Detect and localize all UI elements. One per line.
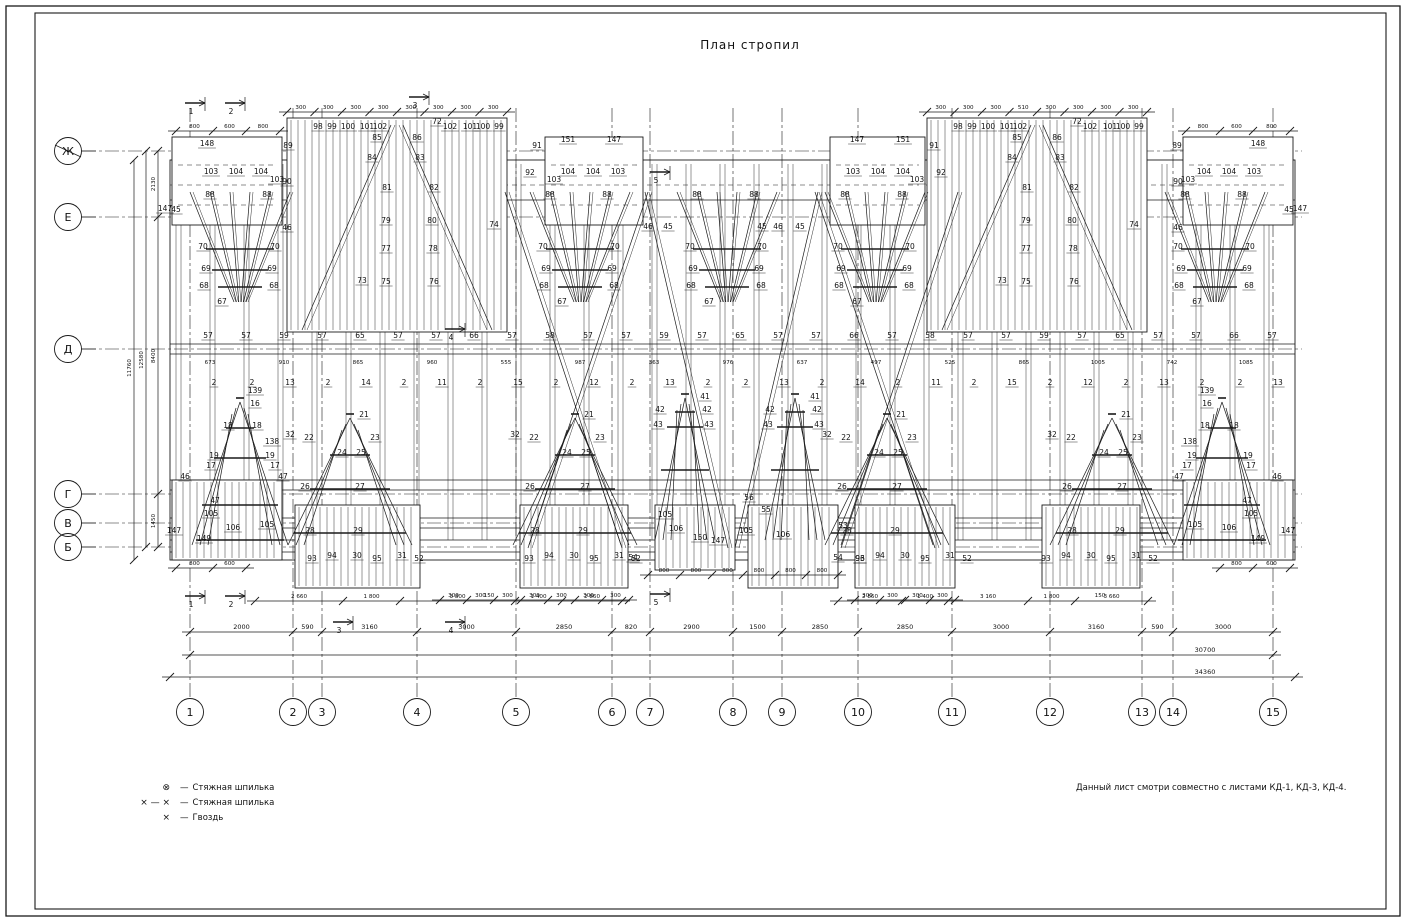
svg-text:148: 148 [200, 139, 215, 148]
svg-text:32: 32 [822, 430, 832, 439]
svg-text:300: 300 [502, 593, 513, 599]
svg-text:19: 19 [1187, 451, 1197, 460]
svg-text:95: 95 [372, 554, 382, 563]
svg-text:89: 89 [283, 141, 293, 150]
svg-text:Е: Е [65, 211, 72, 224]
svg-text:11: 11 [437, 378, 447, 387]
svg-text:2: 2 [229, 107, 234, 116]
svg-text:12: 12 [1043, 706, 1057, 719]
svg-text:5: 5 [654, 176, 659, 185]
svg-text:105: 105 [658, 510, 673, 519]
svg-text:21: 21 [359, 410, 369, 419]
svg-text:57: 57 [697, 331, 707, 340]
svg-text:Ж: Ж [62, 145, 74, 158]
svg-text:13: 13 [1273, 378, 1283, 387]
svg-text:2850: 2850 [812, 623, 829, 631]
svg-text:34360: 34360 [1195, 668, 1216, 676]
legend: ⊗ — Стяжная шпилька × — × — Стяжная шпил… [118, 780, 274, 825]
svg-text:300: 300 [448, 593, 459, 599]
svg-text:10: 10 [851, 706, 865, 719]
legend-separator: — [176, 783, 193, 793]
svg-text:100: 100 [341, 122, 356, 131]
svg-text:555: 555 [501, 360, 512, 366]
svg-text:150: 150 [1095, 593, 1106, 599]
svg-text:600: 600 [1231, 124, 1242, 130]
svg-text:2: 2 [630, 378, 635, 387]
svg-text:43: 43 [763, 420, 773, 429]
svg-text:300: 300 [529, 593, 540, 599]
svg-text:105: 105 [260, 520, 275, 529]
svg-text:52: 52 [414, 554, 424, 563]
svg-text:5: 5 [513, 706, 520, 719]
svg-text:23: 23 [370, 433, 380, 442]
svg-text:23: 23 [1132, 433, 1142, 442]
svg-text:510: 510 [1018, 105, 1029, 111]
svg-text:27: 27 [580, 482, 590, 491]
svg-text:104: 104 [1222, 167, 1237, 176]
svg-text:102: 102 [443, 122, 458, 131]
svg-text:105: 105 [739, 526, 754, 535]
svg-text:88: 88 [602, 190, 612, 199]
svg-text:17: 17 [1246, 461, 1256, 470]
svg-text:15: 15 [513, 378, 523, 387]
svg-text:150: 150 [693, 533, 708, 542]
svg-text:300: 300 [433, 105, 444, 111]
svg-text:46: 46 [1272, 472, 1282, 481]
svg-text:22: 22 [841, 433, 851, 442]
svg-text:2: 2 [1238, 378, 1243, 387]
svg-text:600: 600 [224, 124, 235, 130]
svg-text:149: 149 [197, 534, 212, 543]
svg-text:94: 94 [544, 551, 554, 560]
svg-text:800: 800 [189, 124, 200, 130]
svg-text:77: 77 [1021, 244, 1031, 253]
svg-text:88: 88 [545, 190, 555, 199]
svg-text:31: 31 [614, 551, 624, 560]
svg-text:30: 30 [569, 551, 579, 560]
svg-text:300: 300 [912, 593, 923, 599]
svg-text:138: 138 [265, 437, 280, 446]
svg-text:147: 147 [711, 536, 726, 545]
svg-text:67: 67 [852, 297, 862, 306]
svg-text:69: 69 [688, 264, 698, 273]
svg-text:В: В [64, 517, 72, 530]
svg-text:57: 57 [203, 331, 213, 340]
svg-text:14: 14 [361, 378, 371, 387]
svg-text:68: 68 [199, 281, 209, 290]
svg-text:28: 28 [530, 526, 540, 535]
svg-text:1500: 1500 [749, 623, 766, 631]
svg-text:27: 27 [1117, 482, 1127, 491]
svg-text:2900: 2900 [683, 623, 700, 631]
svg-text:8400: 8400 [151, 348, 157, 363]
svg-text:12580: 12580 [139, 351, 145, 369]
svg-text:24: 24 [1099, 448, 1109, 457]
svg-text:742: 742 [1167, 360, 1178, 366]
svg-text:82: 82 [1069, 183, 1079, 192]
svg-text:300: 300 [323, 105, 334, 111]
svg-text:30: 30 [352, 551, 362, 560]
svg-text:800: 800 [722, 568, 733, 574]
svg-text:105: 105 [204, 509, 219, 518]
svg-text:84: 84 [367, 153, 377, 162]
svg-text:32: 32 [510, 430, 520, 439]
svg-text:69: 69 [541, 264, 551, 273]
svg-text:27: 27 [892, 482, 902, 491]
svg-text:58: 58 [545, 331, 555, 340]
svg-text:25: 25 [581, 448, 591, 457]
svg-text:84: 84 [1007, 153, 1017, 162]
svg-text:2: 2 [1048, 378, 1053, 387]
svg-text:99: 99 [1134, 122, 1144, 131]
svg-text:3 660: 3 660 [1103, 594, 1119, 600]
svg-text:2: 2 [212, 378, 217, 387]
svg-text:151: 151 [896, 135, 911, 144]
svg-text:960: 960 [427, 360, 438, 366]
svg-text:68: 68 [269, 281, 279, 290]
svg-text:800: 800 [258, 124, 269, 130]
svg-text:800: 800 [785, 568, 796, 574]
svg-text:2: 2 [972, 378, 977, 387]
svg-text:68: 68 [834, 281, 844, 290]
svg-text:73: 73 [357, 276, 367, 285]
svg-text:43: 43 [704, 420, 714, 429]
drawing-sheet: 2000590316030002850820290015002850285030… [0, 0, 1407, 923]
svg-text:45: 45 [1284, 205, 1294, 214]
svg-text:2: 2 [744, 378, 749, 387]
svg-text:18: 18 [1229, 421, 1239, 430]
svg-text:104: 104 [1197, 167, 1212, 176]
svg-text:104: 104 [254, 167, 269, 176]
svg-text:88: 88 [205, 190, 215, 199]
svg-text:57: 57 [1077, 331, 1087, 340]
svg-text:66: 66 [849, 331, 859, 340]
svg-text:147: 147 [850, 135, 865, 144]
svg-text:2 660: 2 660 [291, 594, 307, 600]
svg-text:55: 55 [761, 505, 771, 514]
svg-text:72: 72 [432, 117, 442, 126]
svg-text:26: 26 [1062, 482, 1072, 491]
svg-text:11760: 11760 [127, 359, 133, 377]
svg-text:820: 820 [625, 623, 637, 631]
svg-text:57: 57 [583, 331, 593, 340]
svg-text:3000: 3000 [993, 623, 1010, 631]
svg-text:800: 800 [817, 568, 828, 574]
svg-text:15: 15 [1007, 378, 1017, 387]
svg-text:104: 104 [586, 167, 601, 176]
svg-text:105: 105 [1244, 509, 1259, 518]
svg-text:88: 88 [1237, 190, 1247, 199]
svg-text:18: 18 [223, 421, 233, 430]
svg-text:86: 86 [412, 133, 422, 142]
svg-text:800: 800 [1266, 124, 1277, 130]
svg-text:69: 69 [267, 264, 277, 273]
svg-text:78: 78 [1068, 244, 1078, 253]
svg-text:88: 88 [897, 190, 907, 199]
svg-text:47: 47 [1242, 496, 1252, 505]
svg-text:147: 147 [607, 135, 622, 144]
svg-text:99: 99 [967, 122, 977, 131]
svg-text:3: 3 [413, 101, 418, 110]
legend-label: Гвоздь [193, 813, 224, 823]
svg-text:69: 69 [836, 264, 846, 273]
svg-text:94: 94 [327, 551, 337, 560]
svg-text:59: 59 [659, 331, 669, 340]
svg-text:2000: 2000 [233, 623, 250, 631]
svg-text:75: 75 [1021, 277, 1031, 286]
svg-text:106: 106 [669, 524, 684, 533]
svg-text:31: 31 [1131, 551, 1141, 560]
svg-text:42: 42 [812, 405, 822, 414]
svg-text:19: 19 [209, 451, 219, 460]
svg-text:13: 13 [285, 378, 295, 387]
svg-text:103: 103 [910, 175, 925, 184]
svg-text:93: 93 [524, 554, 534, 563]
svg-text:300: 300 [1100, 105, 1111, 111]
svg-text:19: 19 [265, 451, 275, 460]
svg-text:65: 65 [355, 331, 365, 340]
svg-text:525: 525 [945, 360, 956, 366]
svg-text:29: 29 [1115, 526, 1125, 535]
svg-text:300: 300 [937, 593, 948, 599]
svg-text:46: 46 [282, 223, 292, 232]
svg-text:26: 26 [300, 482, 310, 491]
svg-text:4: 4 [449, 626, 454, 635]
svg-text:79: 79 [381, 216, 391, 225]
svg-text:103: 103 [1247, 167, 1262, 176]
svg-text:57: 57 [811, 331, 821, 340]
svg-text:69: 69 [201, 264, 211, 273]
svg-text:68: 68 [686, 281, 696, 290]
svg-text:106: 106 [1222, 523, 1237, 532]
svg-text:67: 67 [704, 297, 714, 306]
svg-text:92: 92 [936, 168, 946, 177]
svg-text:28: 28 [1067, 526, 1077, 535]
svg-text:102: 102 [1083, 122, 1098, 131]
svg-text:103: 103 [611, 167, 626, 176]
svg-text:2850: 2850 [897, 623, 914, 631]
svg-text:104: 104 [561, 167, 576, 176]
svg-text:32: 32 [1047, 430, 1057, 439]
svg-text:300: 300 [935, 105, 946, 111]
svg-text:25: 25 [1118, 448, 1128, 457]
svg-text:43: 43 [814, 420, 824, 429]
svg-text:147: 147 [1293, 204, 1308, 213]
svg-text:69: 69 [607, 264, 617, 273]
svg-text:3160: 3160 [361, 623, 378, 631]
svg-text:300: 300 [610, 593, 621, 599]
svg-text:865: 865 [1019, 360, 1030, 366]
svg-text:497: 497 [871, 360, 882, 366]
svg-text:Д: Д [64, 343, 73, 356]
svg-text:2: 2 [326, 378, 331, 387]
svg-text:68: 68 [609, 281, 619, 290]
svg-text:3160: 3160 [1088, 623, 1105, 631]
svg-text:41: 41 [810, 392, 820, 401]
svg-text:30: 30 [900, 551, 910, 560]
svg-text:47: 47 [1174, 472, 1184, 481]
svg-text:22: 22 [304, 433, 314, 442]
svg-text:14: 14 [855, 378, 865, 387]
svg-text:67: 67 [217, 297, 227, 306]
svg-text:93: 93 [1041, 554, 1051, 563]
svg-text:104: 104 [896, 167, 911, 176]
svg-text:74: 74 [489, 220, 499, 229]
svg-text:16: 16 [1202, 399, 1212, 408]
svg-text:23: 23 [907, 433, 917, 442]
svg-text:103: 103 [846, 167, 861, 176]
svg-text:81: 81 [382, 183, 392, 192]
svg-text:147: 147 [158, 204, 173, 213]
svg-text:88: 88 [840, 190, 850, 199]
svg-text:67: 67 [557, 297, 567, 306]
svg-text:70: 70 [610, 242, 620, 251]
svg-text:100: 100 [476, 122, 491, 131]
tie-stud-section-icon: × — × [118, 798, 176, 808]
svg-text:45: 45 [795, 222, 805, 231]
svg-text:93: 93 [307, 554, 317, 563]
svg-text:46: 46 [180, 472, 190, 481]
svg-text:25: 25 [356, 448, 366, 457]
svg-text:102: 102 [373, 122, 388, 131]
svg-text:45: 45 [663, 222, 673, 231]
svg-text:300: 300 [990, 105, 1001, 111]
svg-text:95: 95 [1106, 554, 1116, 563]
svg-text:80: 80 [427, 216, 437, 225]
svg-text:68: 68 [756, 281, 766, 290]
svg-text:70: 70 [538, 242, 548, 251]
svg-text:74: 74 [1129, 220, 1139, 229]
svg-text:66: 66 [469, 331, 479, 340]
svg-text:90: 90 [1173, 177, 1183, 186]
svg-text:59: 59 [279, 331, 289, 340]
svg-text:22: 22 [1066, 433, 1076, 442]
svg-text:910: 910 [279, 360, 290, 366]
svg-text:58: 58 [925, 331, 935, 340]
svg-text:590: 590 [1151, 623, 1163, 631]
svg-text:147: 147 [167, 526, 182, 535]
svg-text:26: 26 [837, 482, 847, 491]
svg-text:76: 76 [429, 277, 439, 286]
svg-text:31: 31 [945, 551, 955, 560]
svg-text:600: 600 [224, 561, 235, 567]
svg-text:68: 68 [539, 281, 549, 290]
svg-text:82: 82 [429, 183, 439, 192]
svg-text:300: 300 [378, 105, 389, 111]
svg-text:99: 99 [494, 122, 504, 131]
svg-text:59: 59 [1039, 331, 1049, 340]
svg-text:80: 80 [1067, 216, 1077, 225]
svg-text:300: 300 [1128, 105, 1139, 111]
svg-text:2: 2 [706, 378, 711, 387]
svg-text:22: 22 [529, 433, 539, 442]
svg-text:70: 70 [1173, 242, 1183, 251]
svg-text:42: 42 [655, 405, 665, 414]
svg-text:3 160: 3 160 [980, 594, 996, 600]
svg-text:69: 69 [1242, 264, 1252, 273]
svg-text:13: 13 [1159, 378, 1169, 387]
svg-text:2130: 2130 [151, 176, 157, 191]
svg-text:70: 70 [1245, 242, 1255, 251]
svg-text:6: 6 [609, 706, 616, 719]
svg-text:300: 300 [460, 105, 471, 111]
svg-text:104: 104 [229, 167, 244, 176]
svg-text:1: 1 [189, 107, 194, 116]
svg-text:91: 91 [532, 141, 542, 150]
svg-text:57: 57 [393, 331, 403, 340]
svg-text:3: 3 [319, 706, 326, 719]
svg-text:300: 300 [475, 593, 486, 599]
svg-text:2: 2 [820, 378, 825, 387]
svg-text:57: 57 [887, 331, 897, 340]
svg-text:Б: Б [64, 541, 72, 554]
svg-text:57: 57 [963, 331, 973, 340]
rafter-blocks [172, 118, 1293, 588]
legend-item: × — Гвоздь [118, 810, 274, 825]
svg-text:103: 103 [1181, 175, 1196, 184]
svg-text:29: 29 [890, 526, 900, 535]
svg-text:300: 300 [1045, 105, 1056, 111]
svg-text:105: 105 [1188, 520, 1203, 529]
svg-text:72: 72 [1072, 117, 1082, 126]
legend-item: ⊗ — Стяжная шпилька [118, 780, 274, 795]
svg-text:69: 69 [902, 264, 912, 273]
svg-text:94: 94 [875, 551, 885, 560]
svg-text:18: 18 [252, 421, 262, 430]
svg-text:987: 987 [575, 360, 586, 366]
svg-text:27: 27 [355, 482, 365, 491]
svg-text:45: 45 [757, 222, 767, 231]
svg-text:85: 85 [372, 133, 382, 142]
svg-text:147: 147 [1281, 526, 1296, 535]
svg-text:86: 86 [1052, 133, 1062, 142]
svg-text:2: 2 [896, 378, 901, 387]
svg-text:1005: 1005 [1091, 360, 1106, 366]
svg-text:800: 800 [659, 568, 670, 574]
svg-text:89: 89 [1172, 141, 1182, 150]
legend-label: Стяжная шпилька [193, 798, 275, 808]
svg-text:106: 106 [226, 523, 241, 532]
svg-text:2: 2 [402, 378, 407, 387]
svg-text:52: 52 [962, 554, 972, 563]
svg-text:47: 47 [278, 472, 288, 481]
svg-text:14: 14 [1166, 706, 1180, 719]
svg-text:9: 9 [779, 706, 786, 719]
svg-text:148: 148 [1251, 139, 1266, 148]
member-number-rows: 5757595765575766575857575957655757665758… [201, 331, 1284, 387]
svg-text:94: 94 [1061, 551, 1071, 560]
svg-text:24: 24 [874, 448, 884, 457]
svg-text:300: 300 [887, 593, 898, 599]
svg-text:4: 4 [449, 333, 454, 342]
svg-text:300: 300 [556, 593, 567, 599]
svg-text:17: 17 [270, 461, 280, 470]
reference-note: Данный лист смотри совместно с листами К… [1076, 783, 1346, 793]
svg-text:78: 78 [428, 244, 438, 253]
svg-text:300: 300 [1073, 105, 1084, 111]
svg-text:21: 21 [584, 410, 594, 419]
svg-text:1 800: 1 800 [1043, 594, 1059, 600]
svg-text:300: 300 [488, 105, 499, 111]
svg-text:Г: Г [65, 488, 72, 501]
svg-text:31: 31 [397, 551, 407, 560]
purlin-dimension-band: 6739108659605559873639766374975258651005… [205, 360, 1254, 366]
svg-text:18: 18 [1200, 421, 1210, 430]
svg-text:28: 28 [305, 526, 315, 535]
svg-text:91: 91 [929, 141, 939, 150]
svg-text:100: 100 [1116, 122, 1131, 131]
page-title: План стропил [640, 38, 860, 52]
